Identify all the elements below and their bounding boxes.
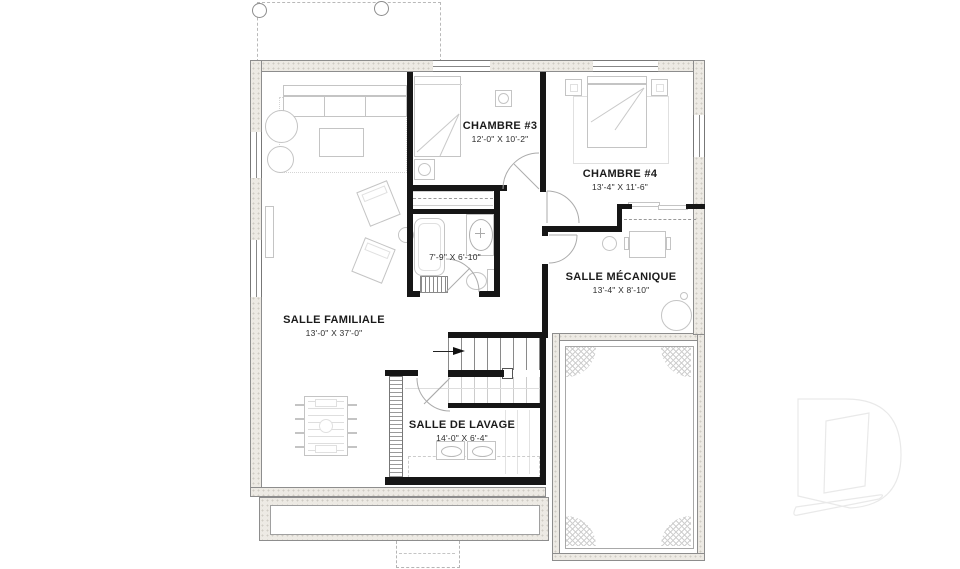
room-label-chambre4: CHAMBRE #4 [583, 168, 658, 180]
foosball-goal-top [315, 399, 337, 407]
wall-laundry-bottom [385, 477, 546, 485]
foosball-table [304, 396, 348, 456]
garage-wall-top [552, 333, 705, 341]
wall-chambre3-bottom [407, 185, 507, 191]
nightstand-chambre3-lamp [418, 163, 431, 176]
porch-steps-dashed [396, 541, 460, 568]
deck-outline [257, 2, 441, 62]
foosball-handle [295, 432, 304, 434]
armchair-1-back [361, 185, 387, 202]
foundation-wall-right [693, 60, 705, 335]
wall-stairs-top [448, 332, 546, 338]
wall-stairs-mid [448, 370, 504, 377]
room-label-mecanique: SALLE MÉCANIQUE [566, 271, 677, 283]
wall-chambre3-right [540, 72, 546, 192]
deck-post-left [252, 3, 267, 18]
door-arc-chambre4 [546, 190, 580, 224]
wall-bathroom-bottom-right [479, 291, 500, 297]
room-dims-chambre3: 12'-0" X 10'-2" [472, 134, 529, 144]
furnace-tab-left [624, 237, 629, 250]
floor-drain [602, 236, 617, 251]
closet3-shelf-line-2 [413, 205, 493, 206]
foosball-handle [348, 404, 357, 406]
room-dims-chambre4: 13'-4" X 11'-6" [592, 182, 648, 192]
laundry-stud-wall [389, 376, 403, 478]
garage-inner-outline [565, 346, 694, 549]
sofa-seat-3 [365, 96, 407, 117]
nightstand-lamp [570, 84, 578, 92]
wall-bathroom-bottom-left [407, 291, 420, 297]
bathtub-inner [418, 223, 441, 271]
room-label-familiale: SALLE FAMILIALE [283, 314, 385, 326]
water-softener [680, 292, 688, 300]
room-dims-lavage: 14'-0" X 6'-4" [436, 433, 488, 443]
dresser-chambre3-lamp [498, 93, 509, 104]
ottoman [267, 146, 294, 173]
window-left-wall-upper [250, 132, 262, 178]
media-console [265, 206, 274, 258]
wall-mecanique-left-lower [542, 264, 548, 338]
deck-post-right [374, 1, 389, 16]
furnace-tab-right [666, 237, 671, 250]
washer [436, 441, 465, 460]
wall-stairs-bottom [448, 403, 540, 408]
door-arc-chambre3 [502, 152, 540, 190]
window-chambre4 [593, 60, 658, 72]
door-arc-laundry [416, 377, 451, 412]
bed-chambre4-headboard [587, 76, 647, 84]
porch-slab-inner [270, 505, 540, 535]
foosball-handle [348, 418, 357, 420]
porch-step-line [399, 553, 455, 554]
floor-plan-canvas: CHAMBRE #3 12'-0" X 10'-2" CHAMBRE #4 13… [0, 0, 960, 569]
lounge-chair [265, 110, 298, 143]
bed-chambre4-blanket-fold [587, 84, 647, 136]
room-dims-familiale: 13'-0" X 37'-0" [306, 328, 363, 338]
room-label-chambre3: CHAMBRE #3 [463, 120, 538, 132]
dryer [467, 441, 496, 460]
door-arc-mecanique [548, 234, 578, 264]
armchair-2 [351, 237, 395, 284]
dryer-lid [472, 446, 493, 457]
stair-treads-lower [448, 377, 542, 403]
garage-wall-left [552, 333, 560, 561]
window-chambre3 [433, 60, 490, 72]
foosball-handle [295, 404, 304, 406]
brand-watermark-d-logo [788, 393, 914, 525]
foosball-center-circle [319, 419, 333, 433]
foosball-handle [295, 446, 304, 448]
water-heater [661, 300, 692, 331]
window-right-wall [693, 115, 705, 157]
stair-direction-arrow [453, 347, 465, 355]
bathtub [414, 218, 445, 276]
room-dims-mecanique: 13'-4" X 8'-10" [593, 285, 650, 295]
wall-laundry-top-cap [385, 370, 418, 376]
closet3-shelf-line-1 [413, 191, 493, 192]
wall-chambre4-bottom [542, 226, 622, 232]
wall-closet4-cap-left [622, 204, 632, 209]
bathroom-pocket-door [420, 276, 448, 293]
sink-faucet-v [480, 228, 481, 238]
coffee-table [319, 128, 364, 157]
room-label-lavage: SALLE DE LAVAGE [409, 419, 515, 431]
wall-bathroom-right [494, 185, 500, 297]
wall-closet3-bottom [407, 209, 500, 214]
door-arc-bathroom [445, 258, 480, 293]
garage-wall-right [697, 333, 705, 561]
washer-lid [441, 446, 462, 457]
bed-chambre3-blanket-fold [414, 76, 462, 158]
wall-closet4-cap-right [686, 204, 705, 209]
stair-direction-line [433, 351, 453, 352]
closet3-rod [413, 198, 493, 199]
sink [469, 219, 493, 251]
nightstand-chambre4-left [565, 79, 582, 96]
window-left-wall-lower [250, 240, 262, 297]
furnace [629, 231, 666, 258]
closet4-rod [624, 219, 696, 220]
foosball-handle [348, 446, 357, 448]
foosball-handle [348, 432, 357, 434]
foosball-goal-bottom [315, 445, 337, 453]
sofa-seat-2 [324, 96, 366, 117]
sofa-back [283, 85, 407, 96]
armchair-1 [356, 180, 400, 227]
closet4-slider-door-1 [628, 202, 660, 207]
armchair-2-back [364, 242, 390, 259]
nightstand-lamp [656, 84, 664, 92]
foundation-wall-bottom [250, 487, 546, 497]
garage-wall-bottom [552, 553, 705, 561]
foosball-handle [295, 418, 304, 420]
room-dims-bain: 7'-9" X 6'-10" [429, 252, 481, 262]
nightstand-chambre4-right [651, 79, 668, 96]
closet4-slider-door-2 [658, 205, 688, 210]
wall-laundry-right [540, 332, 546, 485]
